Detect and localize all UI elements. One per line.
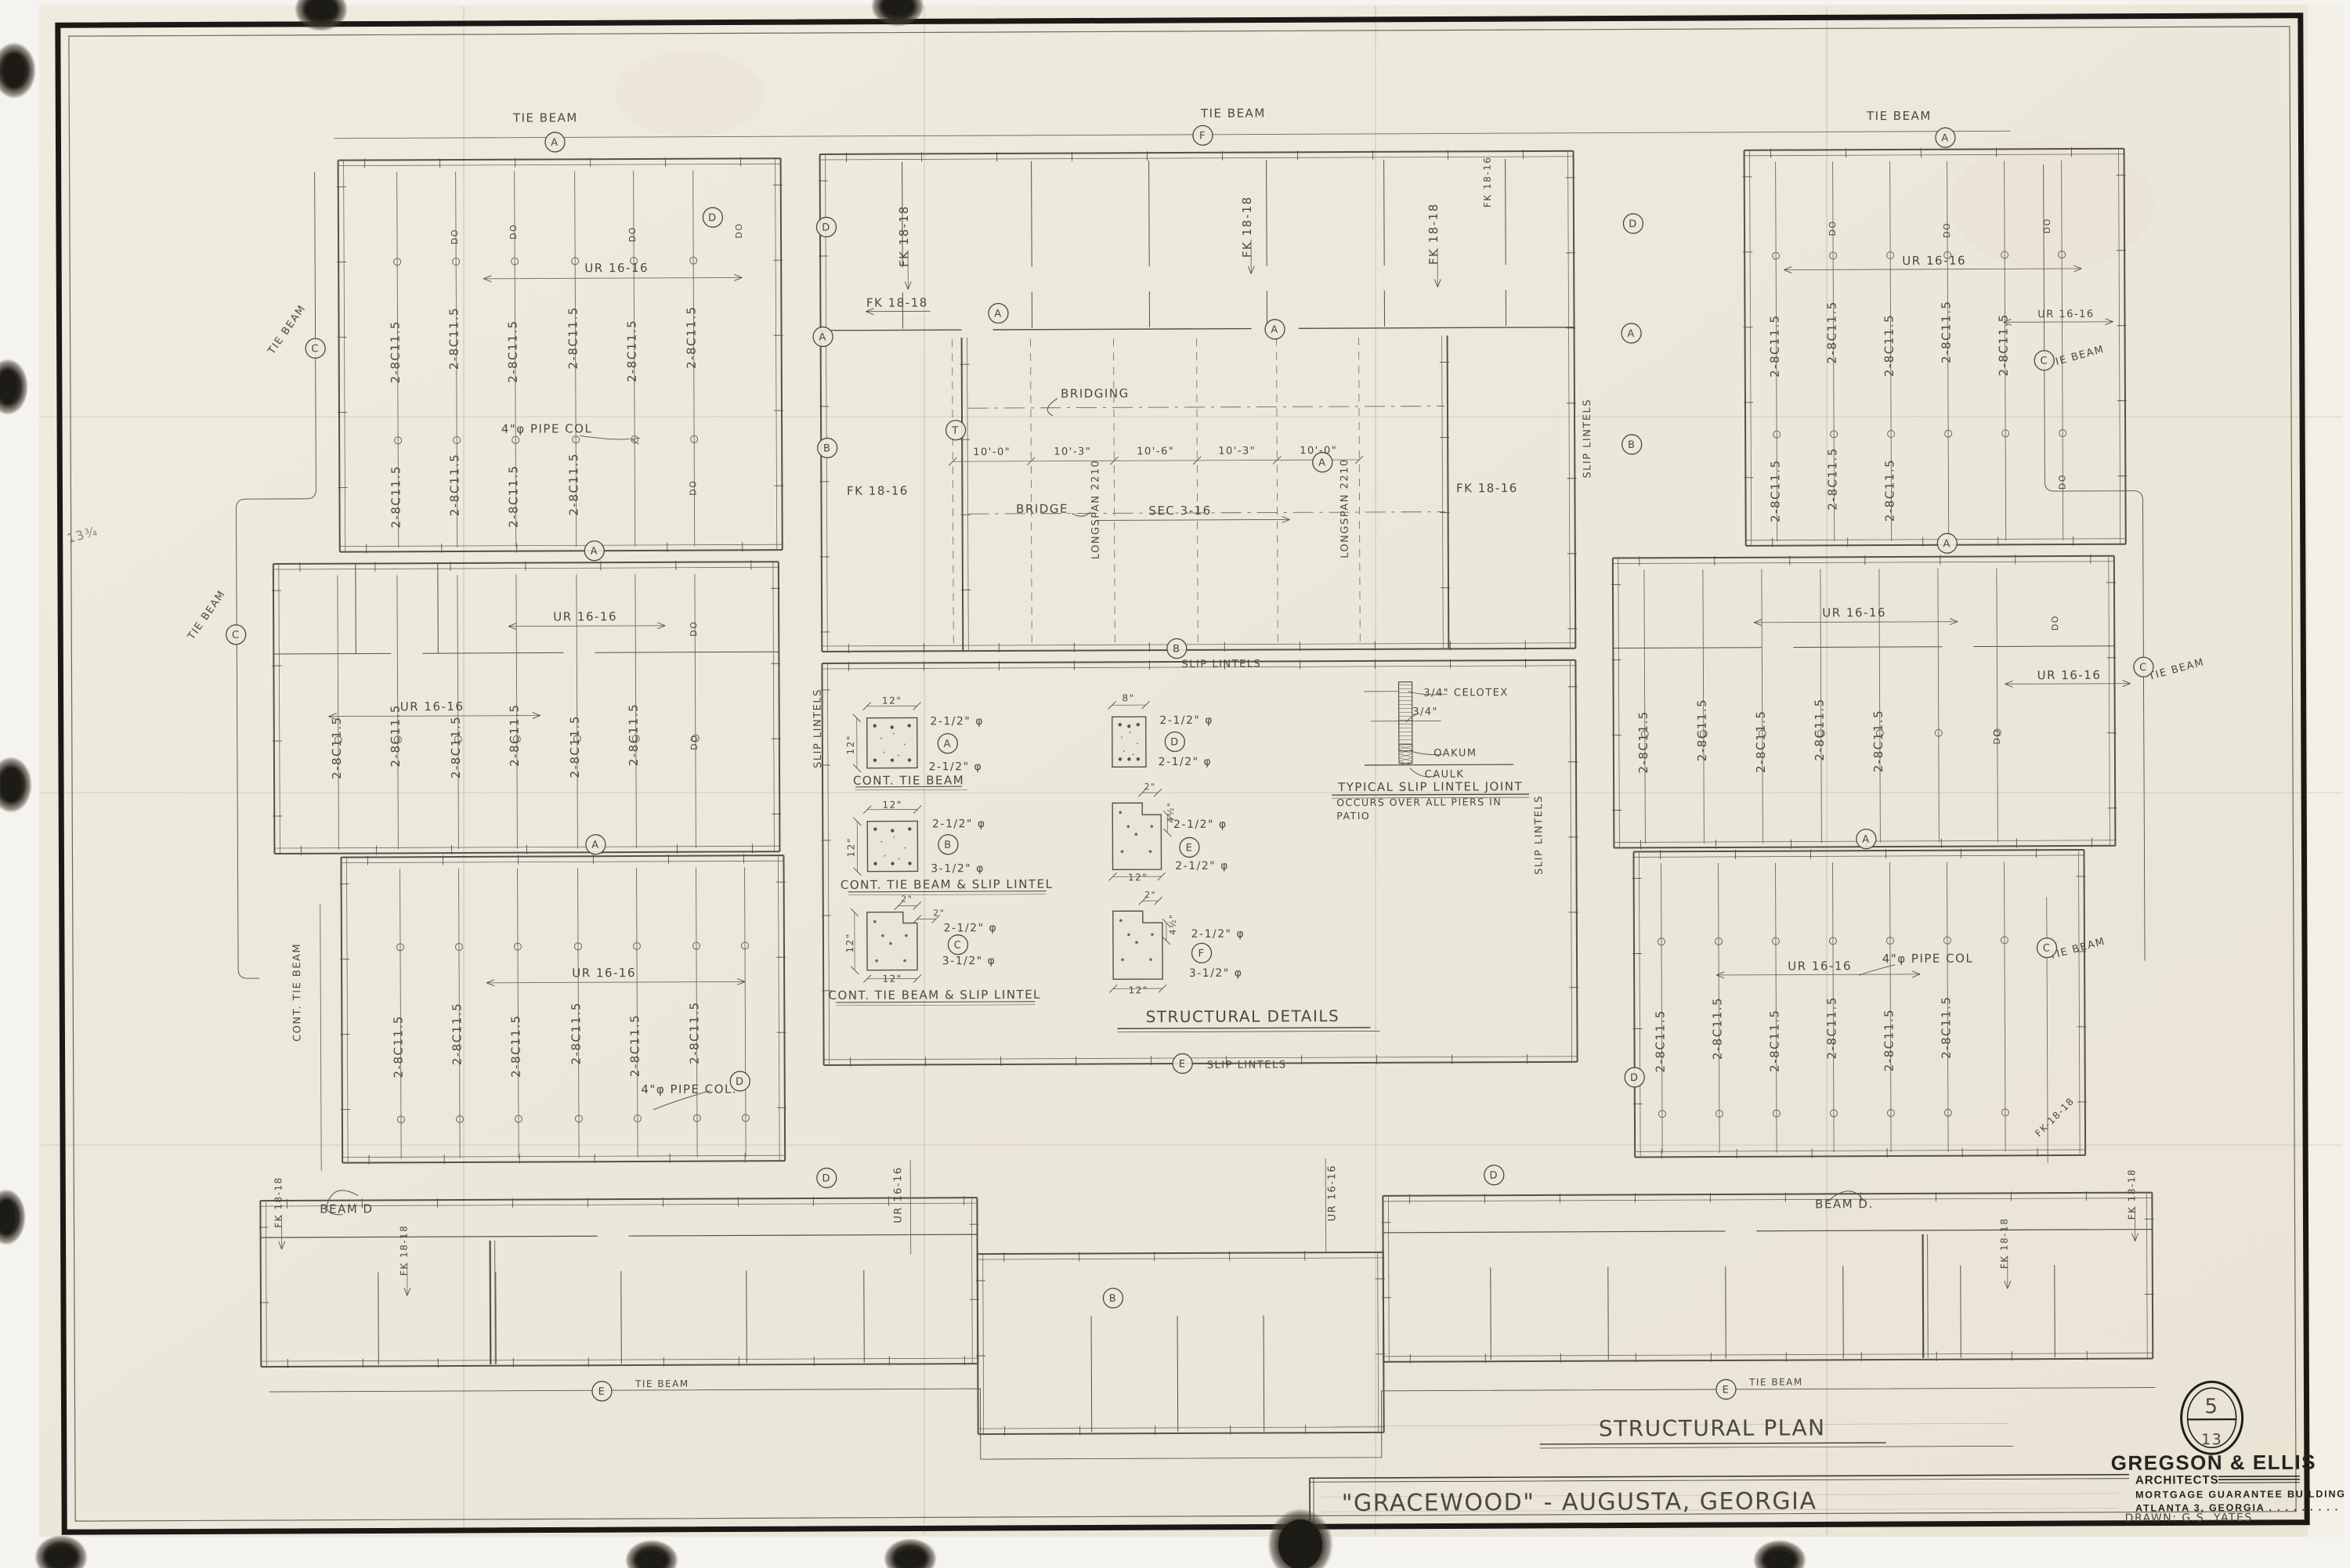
rebar-dot <box>1119 723 1122 726</box>
plan-annotation: UR 16-16 <box>2037 668 2102 682</box>
plan-annotation: CONT. TIE BEAM & SLIP LINTEL <box>828 988 1041 1003</box>
grid-marker-a: A <box>1313 453 1332 472</box>
plan-annotation: SLIP LINTELS <box>812 688 824 768</box>
marker-letter: E <box>1179 1058 1187 1070</box>
rebar-dot <box>881 934 884 938</box>
plan-annotation: 2-8C11.5 <box>1871 710 1885 772</box>
grid-marker-a: A <box>938 734 957 753</box>
rebar-dot <box>908 758 911 761</box>
plan-annotation: CAULK <box>1425 768 1465 780</box>
rebar-dot <box>891 758 894 761</box>
plan-annotation: 2-8C11.5 <box>1824 301 1838 363</box>
rebar-dot <box>908 862 911 865</box>
plan-annotation: 2-8C11.5 <box>391 1015 405 1078</box>
marker-letter: A <box>1271 324 1278 336</box>
wall-line <box>1299 327 1448 328</box>
grid-marker-d: D <box>1484 1165 1504 1185</box>
wall-line <box>438 563 439 653</box>
plan-annotation: 2-8C11.5 <box>506 464 520 527</box>
rebar-dot <box>873 724 877 727</box>
plan-annotation: FK 18-16 <box>1456 481 1518 495</box>
wall-line <box>2152 1193 2153 1359</box>
grid-marker-a: A <box>1936 128 1955 147</box>
rebar-dot <box>875 959 878 963</box>
plan-annotation: 12" <box>845 735 856 754</box>
plan-annotation: DO <box>2050 615 2060 630</box>
rebar-dot <box>873 920 877 923</box>
wall-line <box>1091 1316 1092 1432</box>
plan-annotation: 2-8C11.5 <box>684 305 698 368</box>
plan-annotation: TIE BEAM <box>1866 109 1932 123</box>
rebar-dot <box>873 827 877 830</box>
grid-marker-d: D <box>703 208 722 227</box>
plan-annotation: 12" <box>882 695 902 706</box>
plan-annotation: 2-1/2" φ <box>929 761 983 773</box>
grid-marker-e: E <box>1716 1379 1736 1399</box>
plan-annotation: 2-1/2" φ <box>1191 928 1245 941</box>
grid-marker-d: D <box>730 1071 750 1091</box>
grid-marker-d: D <box>1625 1068 1644 1087</box>
speckle <box>884 752 885 753</box>
plan-annotation: 4"φ PIPE COL <box>1882 952 1974 966</box>
plan-annotation: TIE BEAM <box>634 1378 689 1389</box>
wall-line <box>1384 160 1385 266</box>
plan-annotation: 2" <box>1144 890 1156 900</box>
wall-line <box>978 1254 978 1434</box>
marker-letter: D <box>1629 219 1638 230</box>
plan-annotation: 12" <box>883 800 902 811</box>
marker-letter: T <box>951 425 960 437</box>
plan-annotation: SLIP LINTELS <box>1582 399 1593 479</box>
sheet-number: 5 <box>2204 1395 2218 1418</box>
plan-annotation: DO <box>2057 474 2067 490</box>
speckle <box>884 855 885 857</box>
grid-marker-b: B <box>1167 638 1187 658</box>
grid-marker-c: C <box>2037 938 2056 958</box>
wall-line <box>273 653 391 654</box>
plan-annotation: 2-1/2" φ <box>1159 756 1213 768</box>
grid-marker-a: A <box>586 835 606 854</box>
plan-annotation: FK 18-18 <box>2126 1169 2137 1220</box>
marker-letter: C <box>2043 943 2052 955</box>
speckle <box>1137 742 1138 744</box>
marker-letter: A <box>591 546 598 558</box>
marker-letter: D <box>822 1172 831 1184</box>
wall-line <box>1843 1266 1844 1358</box>
plan-annotation: 3-1/2" φ <box>931 862 985 875</box>
plan-annotation: SLIP LINTELS <box>1181 659 1261 670</box>
plan-annotation: 2-8C11.5 <box>505 320 519 382</box>
marker-letter: F <box>1199 130 1206 142</box>
plan-annotation: 2-8C11.5 <box>1653 1010 1667 1072</box>
plan-annotation: FK 18-16 <box>847 483 909 497</box>
structural-plan-sheet: TIE BEAMTIE BEAMTIE BEAM2-8C11.52-8C11.5… <box>0 0 2350 1568</box>
grid-marker-a: A <box>1937 533 1957 553</box>
drawn-by: DRAWN: G.S. YATES <box>2125 1512 2253 1525</box>
plan-annotation: 10'-6" <box>1137 446 1174 457</box>
rebar-dot <box>1121 850 1124 853</box>
plan-annotation: 2" <box>1144 782 1156 792</box>
plan-annotation: 2-8C11.5 <box>330 716 344 779</box>
plan-annotation: 2-8C11.5 <box>450 1003 464 1065</box>
rebar-dot <box>1137 723 1140 726</box>
rebar-dot <box>1127 724 1130 728</box>
grid-marker-f: F <box>1193 125 1213 145</box>
speckle <box>1121 736 1123 738</box>
plan-annotation: FK 18-18 <box>1999 1218 2010 1270</box>
grid-marker-d: D <box>1165 732 1184 751</box>
grid-marker-c: C <box>226 625 246 645</box>
plan-annotation: 2-8C11.5 <box>627 703 641 766</box>
plan-annotation: SLIP LINTELS <box>1533 795 1545 875</box>
plan-annotation: FK 18-18 <box>897 205 911 267</box>
wall-line <box>864 1270 865 1363</box>
speckle <box>893 836 895 838</box>
marker-letter: B <box>1109 1293 1117 1305</box>
rebar-dot <box>1151 825 1154 828</box>
plan-annotation: 2-8C11.5 <box>624 320 638 382</box>
marker-letter: A <box>1862 834 1870 846</box>
wall-line <box>1177 1316 1178 1432</box>
marker-letter: D <box>1489 1170 1499 1182</box>
joint-note-2: PATIO <box>1336 810 1370 822</box>
plan-annotation: 12" <box>845 837 856 857</box>
grid-marker-a: A <box>813 327 833 346</box>
speckle <box>898 858 899 860</box>
grid-marker-c: C <box>2034 351 2054 370</box>
paper-stain <box>615 51 764 137</box>
plan-title: STRUCTURAL PLAN <box>1599 1414 1826 1441</box>
marker-letter: A <box>551 137 559 149</box>
wall-line <box>1267 160 1267 266</box>
plan-annotation: CONT. TIE BEAM <box>853 773 964 788</box>
grid-marker-b: B <box>938 835 958 854</box>
plan-annotation: 2-8C11.5 <box>1939 300 1953 363</box>
plan-annotation: 10'-3" <box>1218 446 1256 457</box>
plan-annotation: OAKUM <box>1433 747 1477 759</box>
marker-letter: D <box>1170 736 1180 748</box>
marker-letter: A <box>1943 538 1951 550</box>
plan-annotation: 8" <box>1122 692 1134 703</box>
firm-name: GREGSON & ELLIS <box>2111 1451 2316 1475</box>
grid-marker-d: D <box>817 1168 837 1187</box>
plan-annotation: DO <box>627 226 638 242</box>
grid-marker-a: A <box>545 132 565 152</box>
wall-line <box>490 1241 491 1364</box>
wall-line <box>1506 159 1506 265</box>
rebar-dot <box>1127 933 1130 936</box>
rebar-dot <box>1137 757 1140 761</box>
punch-hole-core <box>1278 1519 1322 1568</box>
grid-marker-d: D <box>1623 214 1643 233</box>
plan-annotation: FK 18-18 <box>1240 196 1254 258</box>
plan-annotation: 2-8C11.5 <box>1824 996 1838 1059</box>
rebar-dot <box>1127 825 1130 828</box>
marker-letter: B <box>944 840 952 851</box>
grid-marker-c: C <box>305 338 325 358</box>
rebar-dot <box>1151 933 1154 936</box>
marker-letter: A <box>1941 132 1949 144</box>
marker-letter: A <box>944 739 952 750</box>
plan-annotation: 2-8C11.5 <box>389 465 403 528</box>
grid-marker-a: A <box>1856 829 1876 849</box>
plan-annotation: UR 16-16 <box>1788 959 1852 973</box>
plan-annotation: DO <box>689 735 700 750</box>
plan-annotation: UR 16-16 <box>572 966 636 980</box>
plan-annotation: 2-8C11.5 <box>1825 447 1839 510</box>
speckle <box>893 733 895 735</box>
plan-annotation: TIE BEAM <box>512 110 578 125</box>
marker-letter: A <box>994 308 1002 320</box>
plan-annotation: UR 16-16 <box>892 1166 904 1223</box>
plan-annotation: UR 16-16 <box>1822 605 1886 620</box>
plan-annotation: 2-8C11.5 <box>1882 1009 1896 1071</box>
plan-annotation: DO <box>1828 220 1838 236</box>
plan-annotation: 2-8C11.5 <box>1768 459 1782 522</box>
wall-line <box>621 1271 622 1364</box>
plan-annotation: 2-1/2" φ <box>1175 860 1229 873</box>
rebar-dot <box>908 724 911 727</box>
plan-annotation: 2" <box>933 908 945 918</box>
speckle <box>1133 753 1134 755</box>
plan-annotation: 3-1/2" φ <box>1189 967 1243 980</box>
plan-annotation: FK 18-18 <box>399 1225 410 1277</box>
marker-letter: B <box>1173 643 1180 655</box>
plan-annotation: 2-8C11.5 <box>568 715 582 778</box>
speckle <box>904 744 906 746</box>
punch-hole-core <box>1 768 21 802</box>
plan-annotation: 2-8C11.5 <box>508 703 522 766</box>
plan-annotation: 3/4" <box>1412 706 1438 718</box>
details-title: STRUCTURAL DETAILS <box>1145 1006 1339 1026</box>
plan-annotation: DO <box>2042 218 2052 233</box>
plan-annotation: LONGSPAN 2210 <box>1339 458 1351 558</box>
marker-letter: C <box>2139 662 2148 674</box>
joint-title: TYPICAL SLIP LINTEL JOINT <box>1337 779 1523 794</box>
speckle <box>1130 732 1131 733</box>
plan-annotation: 2-8C11.5 <box>1996 313 2010 376</box>
wall-line <box>910 1160 911 1254</box>
rebar-dot <box>873 758 877 761</box>
speckle <box>880 841 882 843</box>
plan-annotation: 2-8C11.5 <box>1813 698 1827 761</box>
plan-annotation: 2-8C11.5 <box>1754 710 1768 773</box>
wall-line <box>1928 1234 1929 1358</box>
sheet-total: 13 <box>2201 1431 2222 1448</box>
plan-annotation: 2-8C11.5 <box>566 306 580 369</box>
wall-line <box>1448 327 1574 328</box>
plan-annotation: 2-1/2" φ <box>1173 818 1227 831</box>
rebar-dot <box>1127 757 1130 761</box>
plan-annotation: FK 18-18 <box>273 1176 284 1228</box>
marker-letter: C <box>311 343 320 355</box>
wall-line <box>1032 161 1032 267</box>
wall-line <box>356 564 356 654</box>
plan-annotation: UR 16-16 <box>1326 1165 1338 1222</box>
grid-marker-a: A <box>1621 323 1641 343</box>
grid-marker-b: B <box>1103 1288 1123 1308</box>
plan-annotation: 2-1/2" φ <box>944 922 998 934</box>
beam-extent-arrow <box>2004 322 2113 323</box>
plan-annotation: 2-8C11.5 <box>566 453 580 515</box>
plan-annotation: 10'-0" <box>973 446 1010 458</box>
plan-annotation: 2-8C11.5 <box>508 1014 522 1077</box>
wall-line <box>747 1270 747 1363</box>
plan-annotation: 12" <box>1128 872 1148 883</box>
grid-marker-b: B <box>1622 435 1642 454</box>
rebar-dot <box>908 827 911 830</box>
punch-hole-core <box>895 1549 926 1568</box>
marker-letter: D <box>1630 1072 1640 1084</box>
wall-line <box>378 1272 379 1364</box>
wall-line <box>1149 161 1150 266</box>
wall-line <box>2055 1265 2055 1357</box>
grid-marker-a: A <box>584 541 604 561</box>
plan-annotation: 4"φ PIPE COL <box>501 421 593 436</box>
plan-annotation: 4½" <box>1168 913 1178 934</box>
grid-marker-c: C <box>2134 657 2153 677</box>
plan-annotation: 3/4" CELOTEX <box>1423 687 1508 699</box>
plan-annotation: 2-8C11.5 <box>687 1001 701 1064</box>
plan-annotation: FK 18-16 <box>1482 156 1493 208</box>
grid-marker-e: E <box>592 1382 612 1401</box>
plan-annotation: FK 18-18 <box>866 295 928 309</box>
wall-line <box>495 1241 496 1364</box>
plan-annotation: DO <box>688 480 698 496</box>
rebar-dot <box>1119 919 1123 922</box>
grid-marker-t: T <box>946 421 966 440</box>
plan-annotation: BEAM D. <box>1815 1197 1874 1211</box>
plan-annotation: 2" <box>901 894 913 904</box>
speckle <box>898 755 899 757</box>
plan-annotation: 2-1/2" φ <box>1159 714 1213 727</box>
wall-line <box>1491 1267 1491 1360</box>
marker-letter: C <box>954 940 963 952</box>
marker-letter: C <box>2040 356 2048 367</box>
punch-hole-core <box>45 1546 77 1568</box>
speckle <box>1123 750 1125 752</box>
plan-annotation: DO <box>689 621 699 637</box>
wall-line <box>1923 1234 1924 1358</box>
plan-annotation: 2-1/2" φ <box>932 818 986 830</box>
plan-annotation: DO <box>1992 728 2002 744</box>
rebar-dot <box>891 829 894 832</box>
rebar-dot <box>1135 833 1138 836</box>
rebar-dot <box>905 934 908 938</box>
plan-annotation: 12" <box>882 974 902 985</box>
plan-annotation: 12" <box>1129 985 1148 995</box>
plan-annotation: 2-8C11.5 <box>1710 997 1724 1060</box>
plan-annotation: DO <box>450 229 460 244</box>
marker-letter: D <box>708 212 718 224</box>
plan-annotation: CONT. TIE BEAM & SLIP LINTEL <box>841 877 1054 892</box>
plan-annotation: CONT. TIE BEAM <box>291 943 304 1042</box>
grid-marker-a: A <box>1265 320 1285 339</box>
firm-address-1: MORTGAGE GUARANTEE BUILDING <box>2135 1488 2346 1500</box>
plan-annotation: 2-8C11.5 <box>449 716 463 779</box>
speckle <box>904 847 906 849</box>
rebar-dot <box>1119 757 1122 761</box>
rebar-dot <box>1149 958 1152 961</box>
plan-annotation: DO <box>1942 222 1952 238</box>
plan-annotation: 10'-3" <box>1054 446 1091 457</box>
marker-letter: D <box>736 1076 745 1088</box>
plan-annotation: 2-8C11.5 <box>447 453 461 516</box>
grid-marker-a: A <box>989 303 1008 323</box>
marker-letter: E <box>598 1386 606 1398</box>
rebar-dot <box>891 725 894 728</box>
marker-letter: A <box>1627 328 1635 340</box>
wall-line <box>260 1201 261 1367</box>
plan-annotation: BRIDGING <box>1061 386 1130 400</box>
plan-annotation: 2-8C11.5 <box>1939 995 1953 1058</box>
grid-marker-b: B <box>818 438 837 457</box>
speckle <box>880 738 882 739</box>
firm-role: ARCHITECTS <box>2135 1473 2219 1487</box>
wall-line <box>821 330 962 331</box>
rebar-dot <box>873 862 877 865</box>
plan-annotation: UR 16-16 <box>553 609 617 623</box>
plan-annotation: UR 16-16 <box>584 261 649 275</box>
rebar-dot <box>1149 850 1152 853</box>
wall-line <box>1961 1266 1961 1358</box>
plan-annotation: TIE BEAM <box>1748 1377 1803 1388</box>
rebar-dot <box>891 862 894 865</box>
marker-letter: E <box>1723 1384 1730 1396</box>
rebar-dot <box>889 942 892 945</box>
grid-marker-c: C <box>948 935 967 955</box>
plan-annotation: SEC 3-16 <box>1148 504 1211 518</box>
plan-annotation: DO <box>734 222 744 238</box>
rebar-dot <box>1121 958 1124 961</box>
marker-letter: A <box>819 331 826 343</box>
plan-annotation: TIE BEAM <box>1200 106 1266 120</box>
marker-letter: E <box>1186 842 1194 854</box>
marker-letter: B <box>823 443 831 454</box>
grid-marker-e: E <box>1180 837 1199 857</box>
marker-letter: A <box>1318 457 1326 469</box>
marker-letter: C <box>232 630 240 641</box>
marker-letter: D <box>822 222 831 233</box>
wall-line <box>1264 1316 1264 1432</box>
plan-annotation: 2-8C11.5 <box>1767 314 1781 377</box>
plan-annotation: 2-8C11.5 <box>1695 699 1709 761</box>
plan-annotation: 2-8C11.5 <box>1767 1009 1781 1071</box>
plan-annotation: 3-1/2" φ <box>942 955 996 967</box>
plan-annotation: 4"φ PIPE COL. <box>641 1082 737 1097</box>
grid-marker-e: E <box>1173 1053 1192 1073</box>
grid-marker-d: D <box>816 217 836 237</box>
plan-annotation: UR 16-16 <box>2037 309 2095 320</box>
plan-annotation: 2-8C11.5 <box>1636 710 1650 773</box>
plan-annotation: DO <box>508 224 519 240</box>
plan-annotation: BEAM D <box>320 1201 373 1216</box>
plan-annotation: FK 18-18 <box>1426 203 1441 265</box>
plan-annotation: BRIDGE <box>1016 502 1068 516</box>
plan-annotation: 2-8C11.5 <box>446 307 461 370</box>
blueprint-scan: TIE BEAMTIE BEAMTIE BEAM2-8C11.52-8C11.5… <box>0 0 2350 1568</box>
plan-annotation: 2-8C11.5 <box>389 704 403 767</box>
rebar-dot <box>903 959 906 963</box>
rebar-dot <box>1135 941 1138 944</box>
grid-marker-f: F <box>1191 943 1211 963</box>
marker-letter: F <box>1198 948 1205 959</box>
plan-annotation: 2-8C11.5 <box>569 1002 583 1064</box>
plan-annotation: 2-8C11.5 <box>627 1014 642 1077</box>
wall-line <box>496 1272 497 1364</box>
wall-line <box>1365 764 1513 765</box>
marker-letter: B <box>1628 439 1636 451</box>
